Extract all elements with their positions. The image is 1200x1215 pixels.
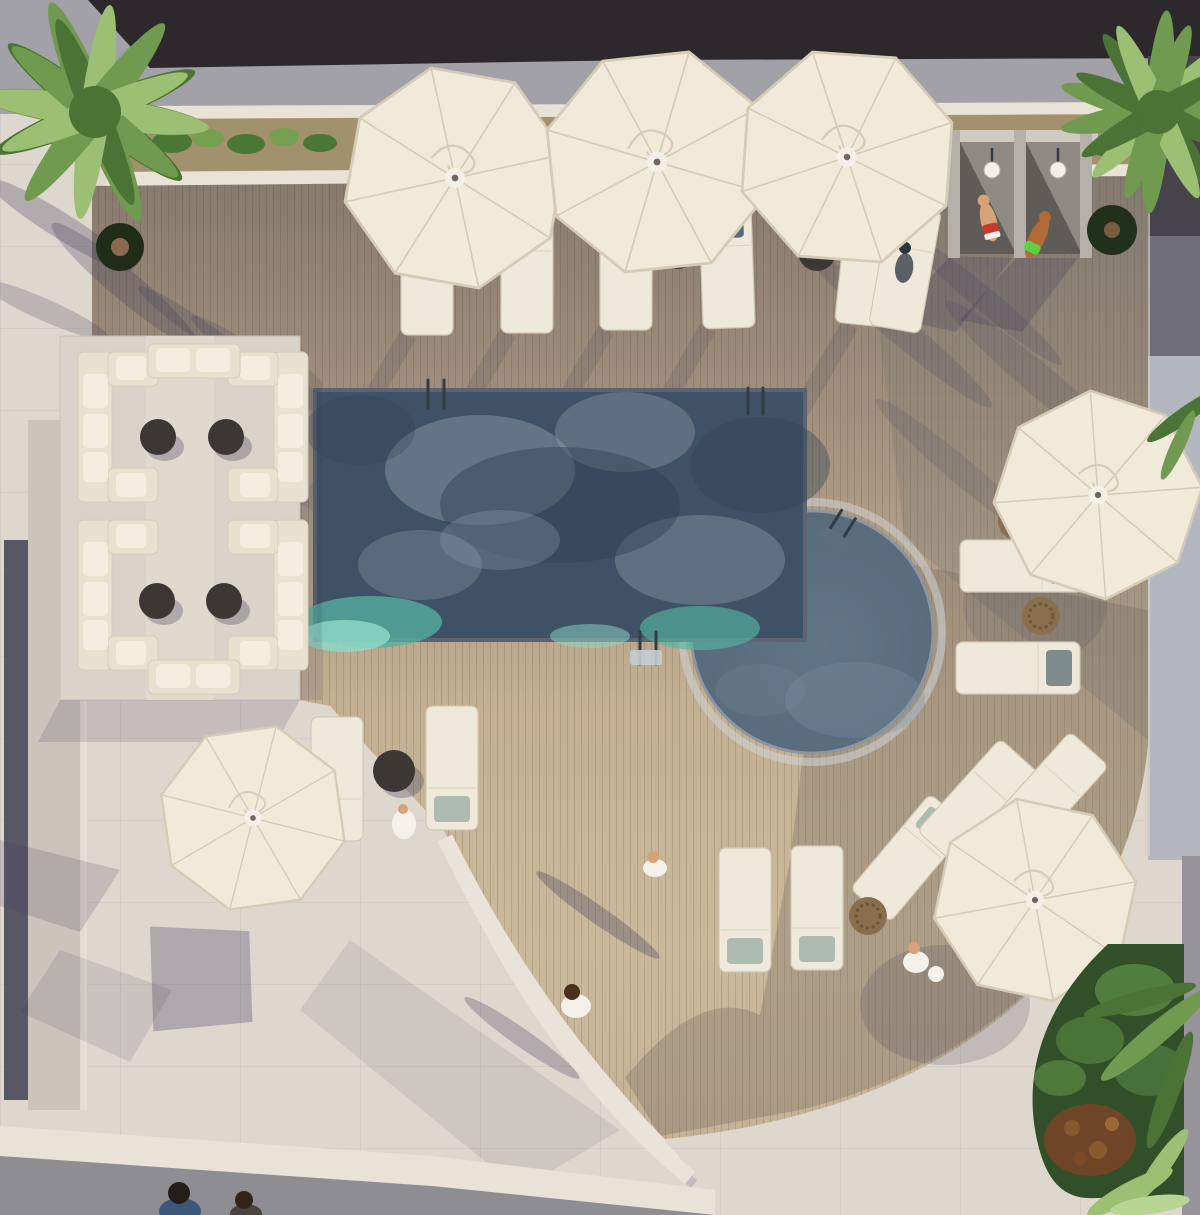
- sun-lounger: [719, 848, 771, 972]
- lounge-sofa-area: [38, 336, 322, 742]
- sun-lounger: [426, 706, 478, 830]
- sun-lounger: [791, 846, 843, 970]
- scene-canvas: [0, 0, 1200, 1215]
- main-pool: [298, 390, 830, 652]
- wicker-pouf: [849, 897, 887, 935]
- sun-lounger: [956, 642, 1080, 694]
- side-table: [373, 750, 415, 792]
- pool-terrace-rendering: Top-down architectural rendering of a re…: [0, 0, 1200, 1215]
- wicker-pouf: [1022, 597, 1060, 635]
- shower-stalls: [948, 130, 1098, 261]
